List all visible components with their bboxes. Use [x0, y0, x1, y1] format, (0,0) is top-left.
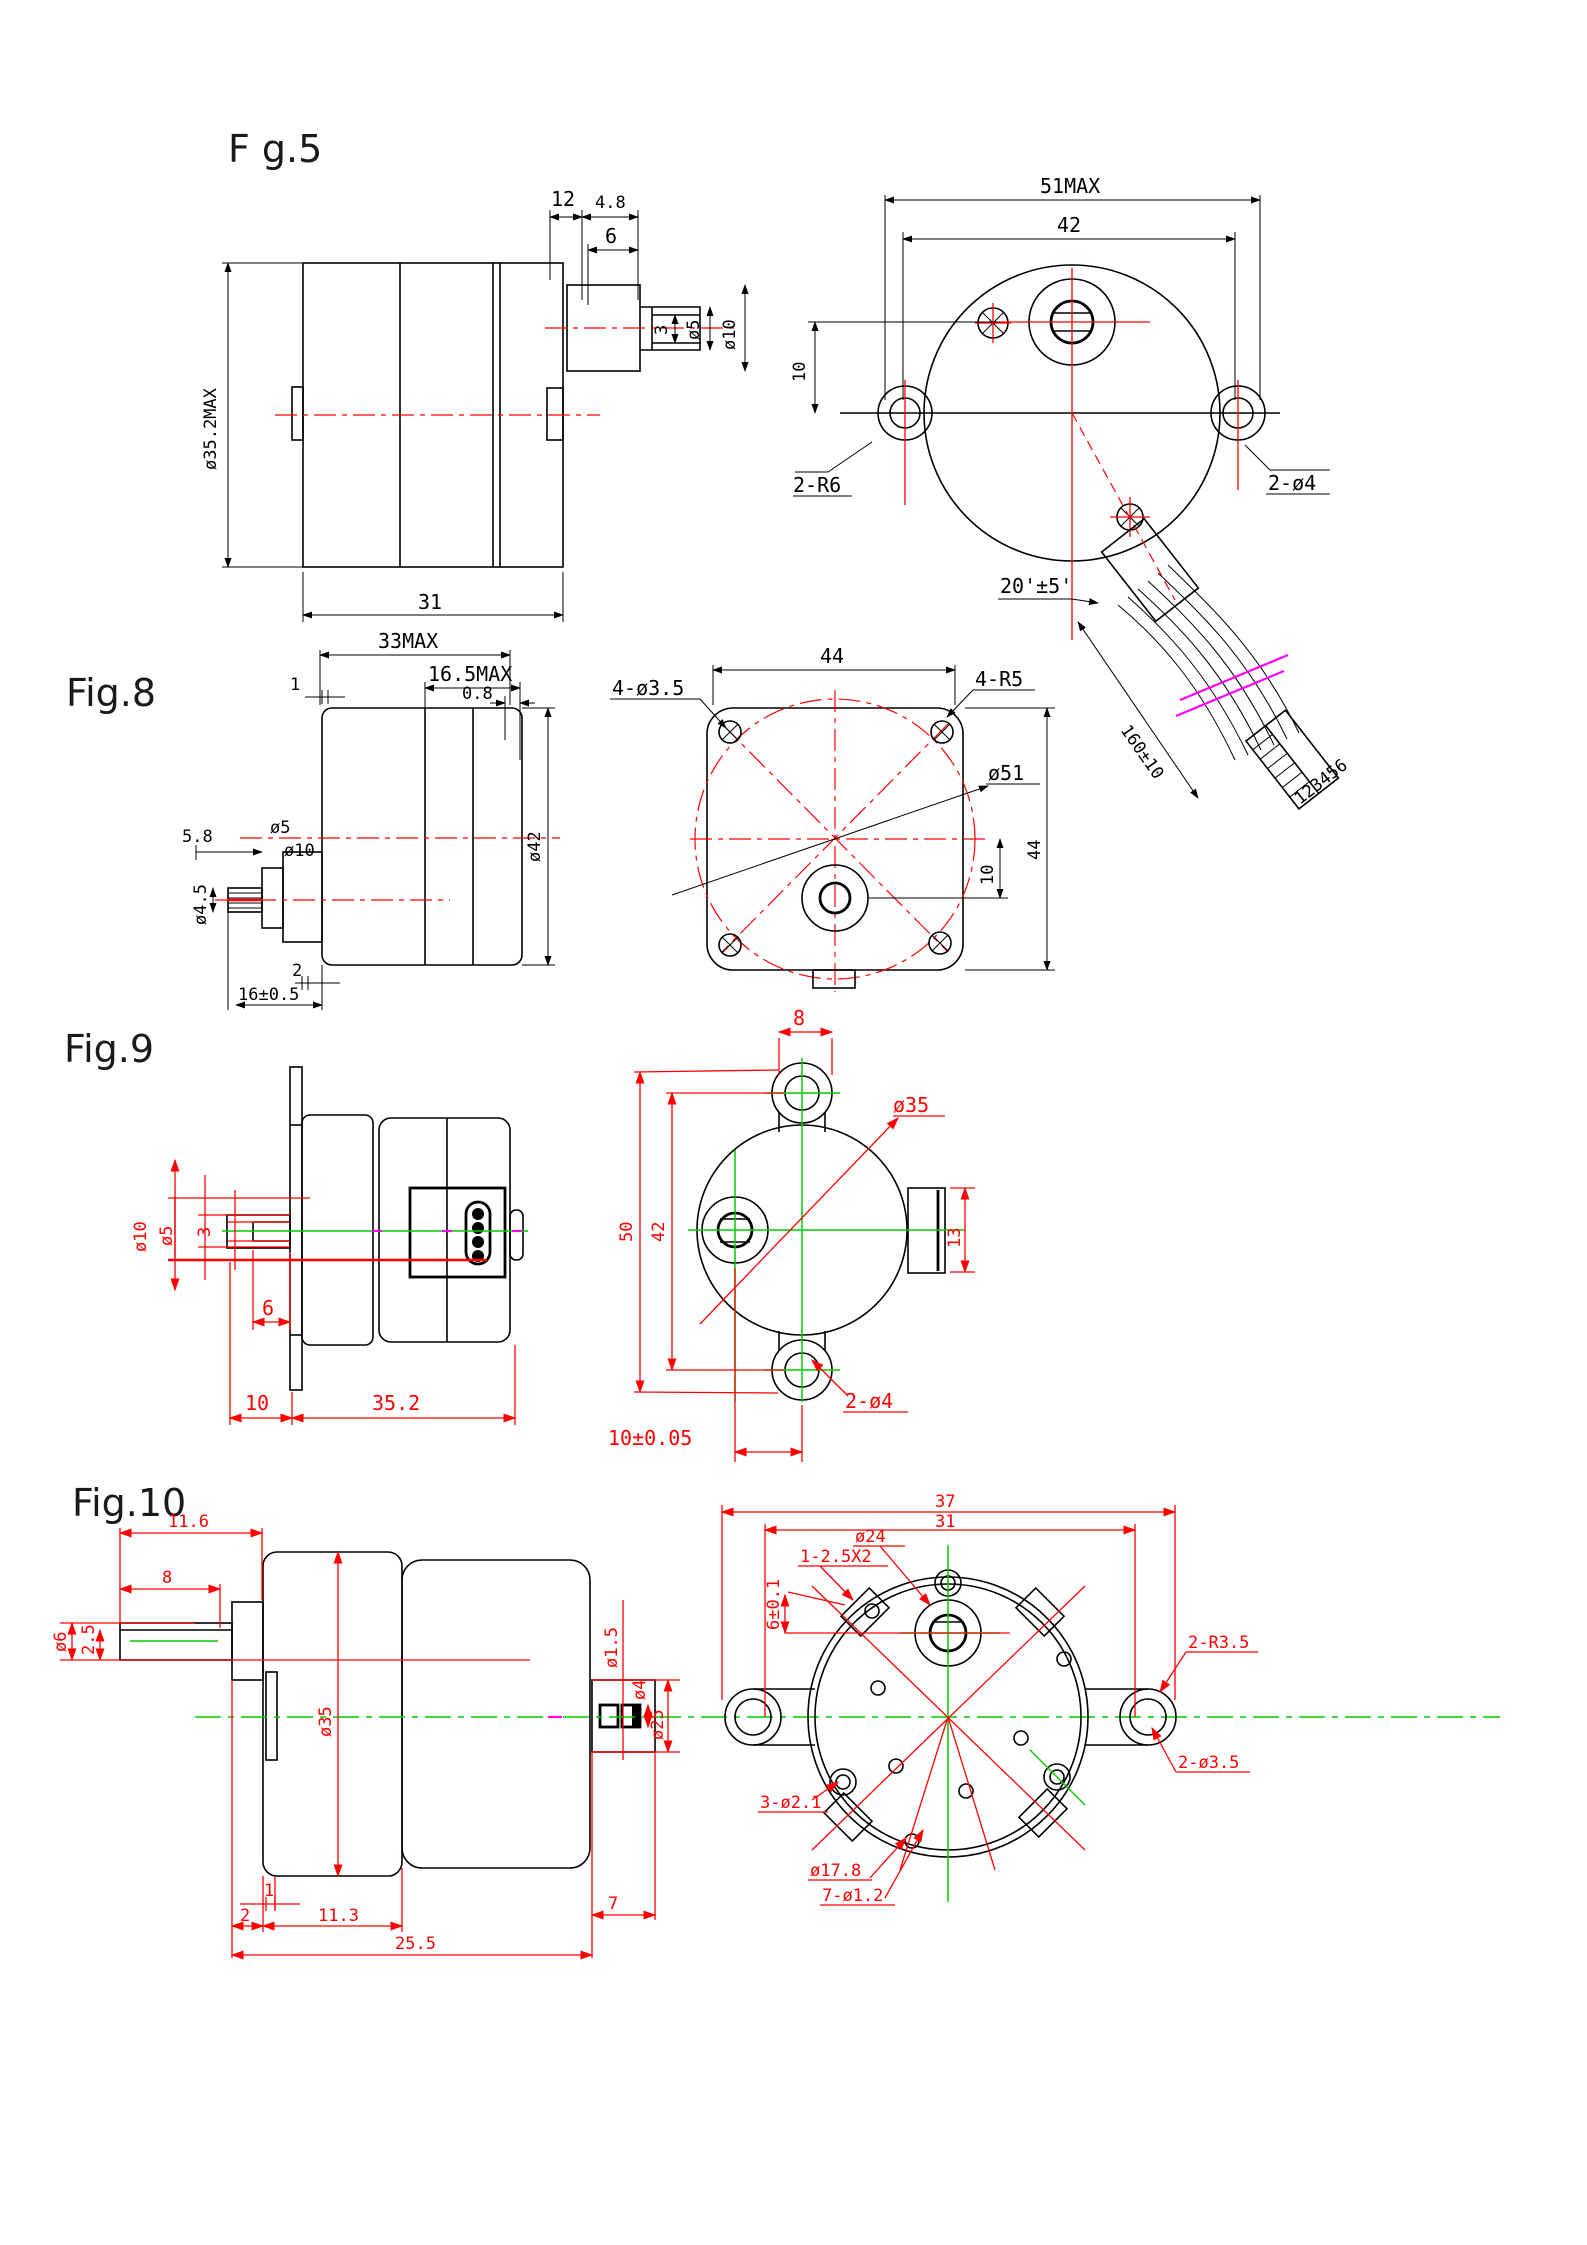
fig8-label-4-r5: 4-R5	[975, 667, 1023, 691]
flange-step	[283, 852, 322, 942]
fig10-dim-dia4: ø4	[630, 1680, 650, 1700]
fig10-dim-8: 8	[162, 1568, 172, 1588]
fig8-dim-dia5: ø5	[270, 818, 290, 838]
fig10-dim-6-01: 6±0.1	[764, 1579, 784, 1630]
fig5-dim-angle: 20'±5'	[1000, 574, 1072, 598]
fig9: Fig.9 ø10 ø5 3 6 1	[64, 1006, 975, 1462]
fig9-dim-8: 8	[793, 1006, 805, 1030]
fig8-title: Fig.8	[66, 671, 156, 715]
fig5-dim-6: 6	[605, 224, 617, 248]
fig5-dim-dia10: ø10	[720, 319, 740, 350]
fig5-front-view: 51MAX 42 10 2-R6 2-ø4 20'±5'	[790, 174, 1351, 809]
slot	[1019, 1789, 1067, 1837]
fig10-dim-37: 37	[935, 1492, 955, 1512]
body-front-section	[302, 1115, 373, 1345]
bearing-boss	[266, 1672, 277, 1760]
fig8-dim-5-8: 5.8	[182, 827, 213, 847]
fig5-dim-42: 42	[1057, 213, 1081, 237]
fig10-dim-dia1-5: ø1.5	[602, 1627, 622, 1668]
fig10-dim-dia35: ø35	[316, 1706, 336, 1737]
fig10-dim-7: 7	[608, 1894, 618, 1914]
fig10-label-3-dia2-1: 3-ø2.1	[760, 1793, 821, 1813]
screw-boss	[830, 1769, 856, 1795]
fig5-dim-dia35-2max: ø35.2MAX	[201, 387, 221, 470]
fig8-dim-dia4-5: ø4.5	[191, 884, 211, 925]
fig9-dim-dia35: ø35	[893, 1093, 929, 1117]
fig10-dim-11-6: 11.6	[168, 1512, 209, 1532]
fig9-dim-35-2: 35.2	[372, 1391, 420, 1415]
fig9-label-2-dia4: 2-ø4	[845, 1389, 893, 1413]
fig9-dim-10: 10	[245, 1391, 269, 1415]
fig5-dim-cable: 160±10	[1116, 721, 1168, 783]
fig10-dim-2-5: 2.5	[79, 1624, 99, 1655]
fig8: Fig.8 33MAX 16.5MAX 0.8 1 5.8 ø5 ø10 ø4.…	[66, 629, 1055, 1010]
fig9-side-view: ø10 ø5 3 6 10 35.2	[131, 1067, 528, 1425]
fig8-dim-10: 10	[978, 865, 998, 885]
fig9-title: Fig.9	[64, 1027, 154, 1071]
flange-plate	[290, 1067, 302, 1390]
fig5-dim-12: 12	[551, 187, 575, 211]
fig9-dim-3: 3	[195, 1227, 215, 1237]
fig8-dim-dia42: ø42	[525, 831, 545, 862]
fig8-dim-0-8: 0.8	[462, 684, 493, 704]
fig8-dim-44-side: 44	[1025, 840, 1045, 860]
fig9-dim-dia10: ø10	[131, 1221, 151, 1252]
motor-body	[402, 1560, 590, 1868]
fig10-label-slots: 1-2.5X2	[800, 1547, 872, 1567]
fig5-label-2-dia4: 2-ø4	[1268, 471, 1316, 495]
fig8-dim-16: 16±0.5	[238, 985, 299, 1005]
fig5-dim-51max: 51MAX	[1040, 174, 1100, 198]
fig10: Fig.10 11.6 8 ø6 2.5 ø35 ø1.5 ø4	[51, 1481, 1500, 1958]
fig5: F g.5 12 4.8 6 3 ø5 ø10 ø35.2MAX	[201, 127, 1351, 809]
fig5-connector-pins: 123456	[1291, 755, 1352, 809]
fig8-front-view: 44 4-ø3.5 4-R5 ø51 44 10	[610, 644, 1055, 992]
fig8-dim-16-5max: 16.5MAX	[428, 662, 512, 686]
fig5-dim-4-8: 4.8	[595, 193, 626, 213]
fig8-dim-33max: 33MAX	[378, 629, 438, 653]
bottom-tab	[813, 970, 855, 988]
fig9-dim-6: 6	[262, 1296, 274, 1320]
drawing-sheet: F g.5 12 4.8 6 3 ø5 ø10 ø35.2MAX	[0, 0, 1587, 2245]
fig8-side-view: 33MAX 16.5MAX 0.8 1 5.8 ø5 ø10 ø4.5 ø42 …	[182, 629, 560, 1010]
fig5-dim-31: 31	[418, 590, 442, 614]
fig9-dim-13: 13	[945, 1228, 965, 1248]
fig10-front-view: 37 31 ø24 1-2.5X2 6±0.1 2-R3.5 2-ø3.5 3-…	[722, 1492, 1258, 1906]
drawing-canvas: F g.5 12 4.8 6 3 ø5 ø10 ø35.2MAX	[0, 0, 1587, 2245]
fig9-dim-50: 50	[617, 1222, 637, 1242]
rear-bump	[510, 1210, 523, 1260]
fig5-dim-10: 10	[790, 362, 810, 382]
fig5-side-view: 12 4.8 6 3 ø5 ø10 ø35.2MAX 31	[201, 187, 745, 622]
fig10-dim-31: 31	[935, 1512, 955, 1532]
fig8-dim-1: 1	[290, 675, 300, 695]
fig10-label-7-dia1-2: 7-ø1.2	[822, 1886, 883, 1906]
front-boss	[232, 1602, 263, 1680]
fig5-label-2-r6: 2-R6	[793, 473, 841, 497]
fig9-dim-42: 42	[649, 1222, 669, 1242]
fig10-dim-dia25: ø25	[648, 1709, 668, 1740]
fig10-dim-dia6: ø6	[51, 1632, 71, 1652]
fig10-label-2-r3-5: 2-R3.5	[1188, 1633, 1249, 1653]
cable-tie-mark	[1180, 655, 1288, 700]
fig9-dim-dia5: ø5	[157, 1226, 177, 1246]
fig10-label-2-dia3-5: 2-ø3.5	[1178, 1753, 1239, 1773]
fig10-dim-2: 2	[240, 1906, 250, 1926]
fig8-dim-44-top: 44	[820, 644, 844, 668]
fig10-dim-25-5: 25.5	[395, 1934, 436, 1954]
fig5-dim-3: 3	[652, 325, 672, 335]
fig5-dim-dia5: ø5	[684, 320, 704, 340]
fig10-dim-dia24: ø24	[855, 1527, 886, 1547]
fig10-dim-dia17-8: ø17.8	[810, 1861, 861, 1881]
slot	[824, 1793, 872, 1841]
fig9-front-view: 8 50 42 ø35 13 2-ø4 10±0.05	[608, 1006, 975, 1462]
fig5-title: F g.5	[228, 127, 322, 171]
terminal-pin	[600, 1705, 618, 1727]
fig8-dim-2: 2	[292, 961, 302, 981]
fig10-dim-11-3: 11.3	[318, 1906, 359, 1926]
mount-tab-left	[292, 387, 303, 440]
fig8-dim-dia10: ø10	[284, 841, 315, 861]
motor-body-outline	[322, 708, 522, 965]
fig8-label-dia51: ø51	[988, 761, 1024, 785]
mount-tab-right	[547, 388, 563, 440]
fig8-label-4-dia3-5: 4-ø3.5	[612, 676, 684, 700]
fig9-dim-10-005: 10±0.05	[608, 1426, 692, 1450]
